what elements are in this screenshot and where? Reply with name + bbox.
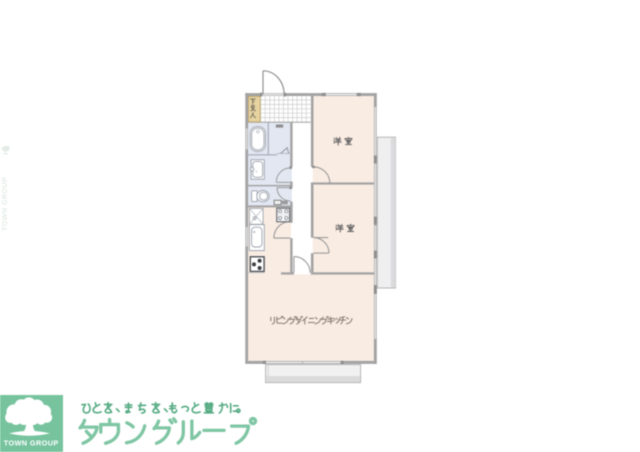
svg-text:TOWN GROUP: TOWN GROUP [0, 177, 9, 231]
svg-text:TOWN GROUP: TOWN GROUP [4, 438, 59, 447]
